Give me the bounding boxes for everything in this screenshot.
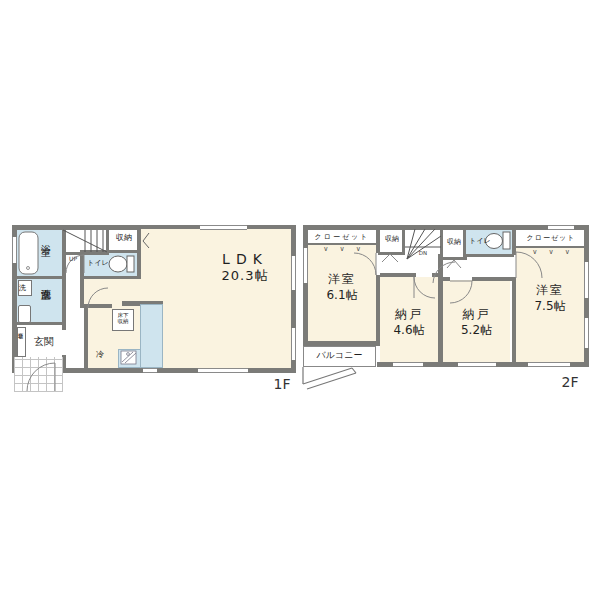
label-storage-room2: 納戸 xyxy=(443,308,510,322)
label-ldk-size: 20.3帖 xyxy=(200,269,290,284)
label-storage-1f: 収納 xyxy=(109,233,139,242)
window xyxy=(393,362,423,367)
wall-segment xyxy=(463,254,514,257)
window xyxy=(291,328,296,360)
label-storage-room2-size: 5.2帖 xyxy=(443,324,510,338)
label-underfloor-storage: 床下 収納 xyxy=(112,312,134,325)
label-toilet-1f: トイレ xyxy=(85,259,111,267)
wall-segment xyxy=(472,277,512,281)
wall-segment xyxy=(62,229,66,330)
shoe-cabinet-box xyxy=(17,327,26,357)
label-washer: 洗 xyxy=(19,284,26,292)
label-balcony: バルコニー xyxy=(305,350,374,360)
label-toilet-2f: トイレ xyxy=(467,237,493,245)
window xyxy=(200,225,247,230)
wall-segment xyxy=(443,277,450,281)
label-floor-2f: 2F xyxy=(556,374,584,390)
label-bath: 浴室 xyxy=(40,236,52,240)
label-storage-b: 収納 xyxy=(442,238,466,246)
label-closet-left: クローゼット xyxy=(308,233,376,241)
floor-plan-page: { "colors": { "wall": "#7b7b78", "room":… xyxy=(0,0,600,599)
window xyxy=(143,368,157,373)
wall-segment xyxy=(380,273,416,277)
entrance-porch-tiles xyxy=(14,357,63,392)
washbasin xyxy=(18,305,31,323)
window xyxy=(198,368,248,373)
label-storage-a: 収納 xyxy=(380,235,404,243)
label-storage-room1: 納戸 xyxy=(380,308,438,322)
balcony-railing xyxy=(303,367,356,389)
kitchen-sink-unit xyxy=(118,349,141,368)
window xyxy=(584,318,589,348)
wall-segment xyxy=(17,276,63,279)
hanger-marks: ∨ ∨ ∨ xyxy=(516,248,586,256)
window xyxy=(291,256,296,290)
label-stairs-up: UP xyxy=(66,256,80,263)
label-ldk: LDK xyxy=(200,251,290,267)
label-entrance: 玄関 xyxy=(26,336,62,348)
wall-segment xyxy=(378,252,405,255)
label-bedroom2-size: 7.5帖 xyxy=(516,300,584,314)
window xyxy=(584,262,589,298)
label-storage-room1-size: 4.6帖 xyxy=(380,324,438,338)
wall-segment xyxy=(84,250,140,253)
wall-segment xyxy=(80,276,140,279)
kitchen-counter xyxy=(140,304,163,368)
label-bedroom1: 洋室 xyxy=(308,273,376,287)
label-stairs-dn: DN xyxy=(416,250,430,256)
label-closet-right: クローゼット xyxy=(516,234,586,242)
hanger-marks: ∨ ∨ ∨ xyxy=(308,245,376,253)
window xyxy=(12,237,17,263)
window xyxy=(548,225,574,230)
window xyxy=(528,362,570,367)
label-bedroom2: 洋室 xyxy=(516,284,584,298)
label-floor-1f: 1F xyxy=(268,376,296,392)
label-bedroom1-size: 6.1帖 xyxy=(308,289,376,303)
wall-segment xyxy=(84,308,88,368)
label-fridge: 冷 xyxy=(94,350,106,359)
window xyxy=(458,362,496,367)
